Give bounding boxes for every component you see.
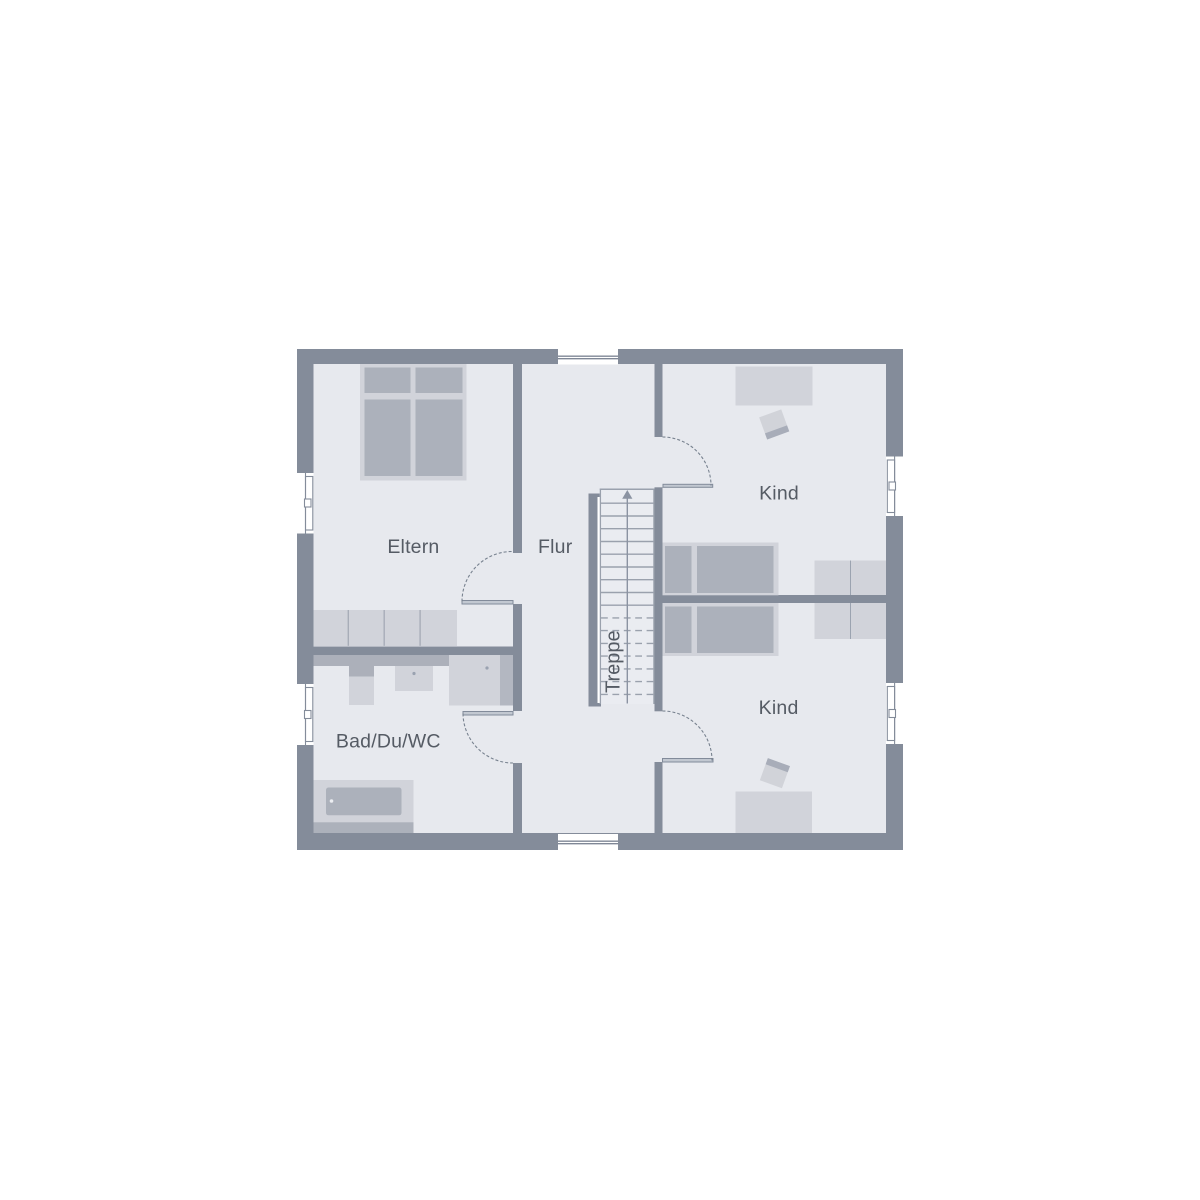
svg-text:Bad/Du/WC: Bad/Du/WC [336,731,441,753]
svg-text:Kind: Kind [759,482,799,504]
svg-text:Flur: Flur [538,536,573,558]
svg-text:Kind: Kind [759,697,799,719]
svg-text:Eltern: Eltern [387,536,439,558]
svg-text:Treppe: Treppe [603,630,625,693]
